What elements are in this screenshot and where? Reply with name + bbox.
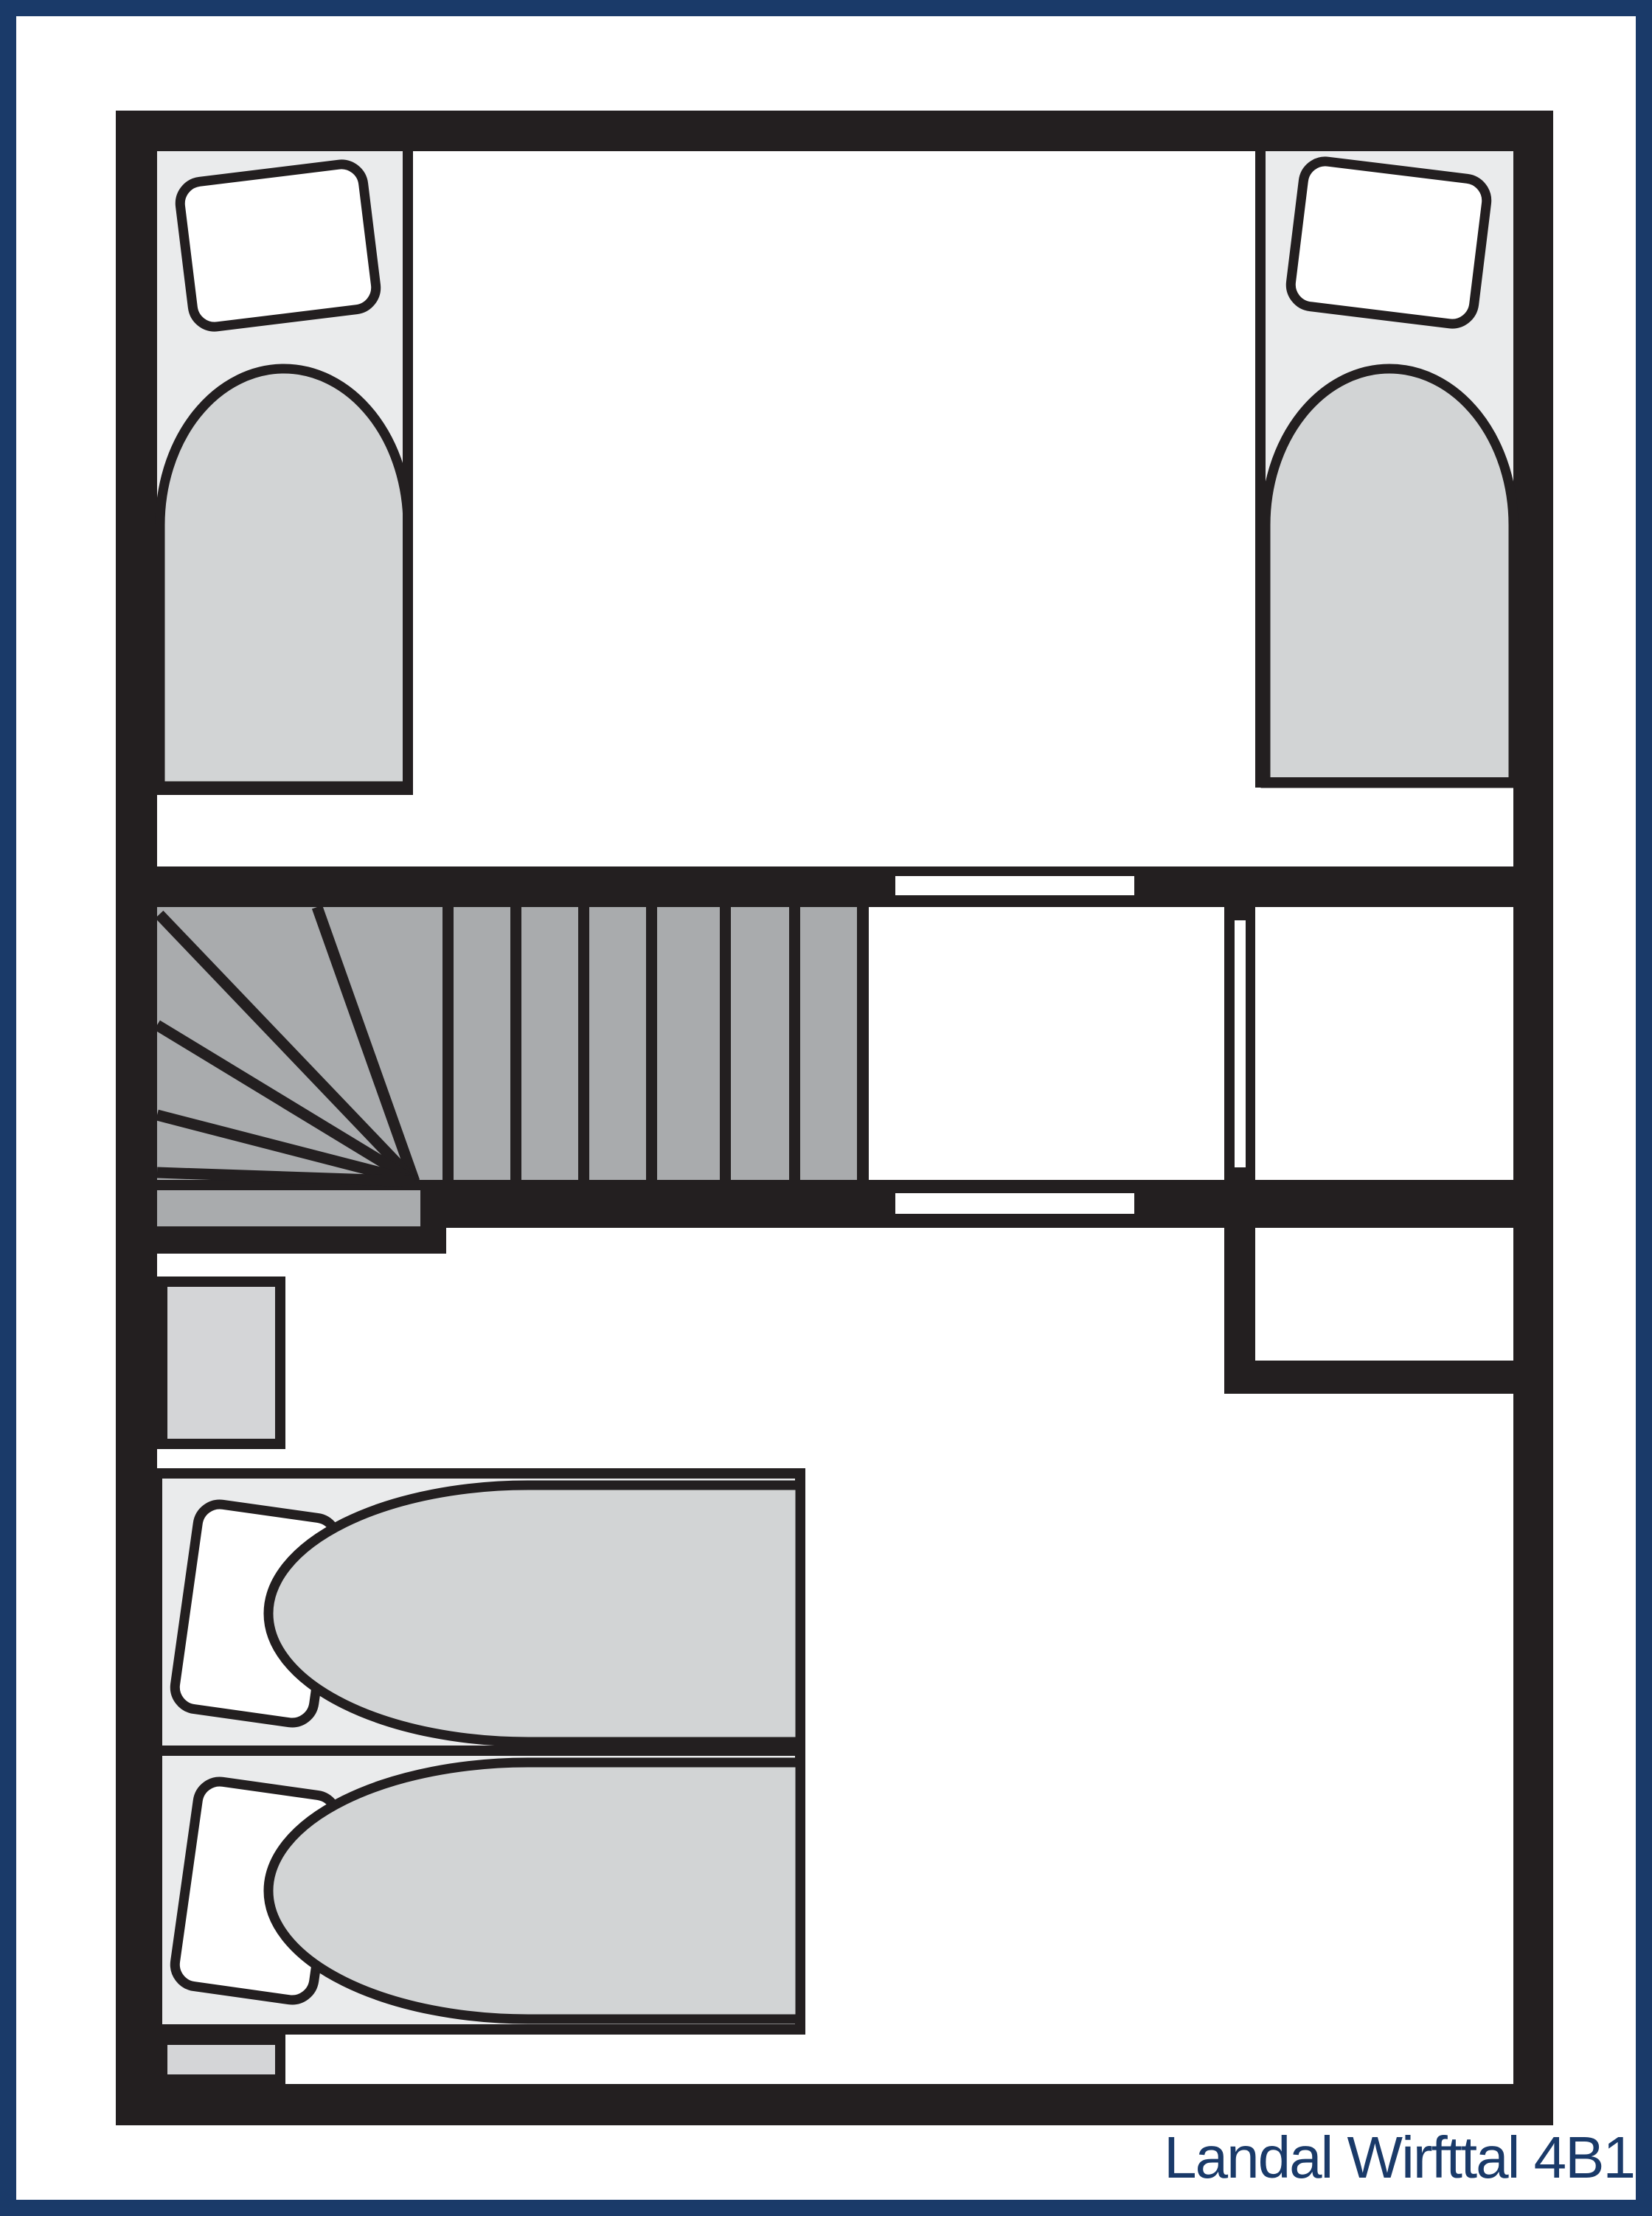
- bed-lower-1: [157, 1473, 800, 1751]
- mattress: [268, 1762, 800, 2019]
- single-bed-top-left: [157, 151, 413, 795]
- mattress: [268, 1485, 800, 1742]
- wall-landing-jog: [420, 1190, 446, 1254]
- stair-tread-line: [720, 907, 731, 1180]
- wall-bedroom-separator: [116, 866, 1553, 907]
- door-opening-top-bedroom: [895, 876, 1134, 895]
- wall-top: [116, 111, 1553, 151]
- floorplan-canvas: [0, 0, 1652, 2216]
- door-openings: [895, 876, 1246, 1214]
- bed-side-line: [403, 151, 413, 791]
- floorplan-page: Landal Wirfttal 4B1: [0, 0, 1652, 2216]
- plan-title-label: Landal Wirfttal 4B1: [1164, 2128, 1634, 2187]
- wall-bottom: [116, 2084, 1553, 2125]
- mattress: [160, 369, 408, 786]
- nightstand-lower: [162, 2040, 280, 2080]
- pillow: [178, 162, 378, 330]
- stair-tread-line: [442, 907, 454, 1180]
- stair-tread-line: [646, 907, 657, 1180]
- stair-right-stringer: [857, 907, 869, 1192]
- double-bed-lower-left: [157, 1473, 800, 2029]
- bed-foot-line: [157, 785, 413, 795]
- winder-staircase: [157, 907, 869, 1226]
- door-opening-hall: [895, 1193, 1134, 1214]
- stair-tread-line: [578, 907, 589, 1180]
- stair-tread-line: [789, 907, 800, 1180]
- single-bed-top-right: [1255, 151, 1513, 788]
- stair-landing-step: [157, 1190, 420, 1226]
- nightstand-upper: [162, 1282, 280, 1444]
- mattress: [1266, 369, 1513, 783]
- wall-right: [1513, 111, 1553, 2125]
- bed-foot-line: [1255, 777, 1513, 788]
- stair-tread-line: [510, 907, 521, 1180]
- bed-side-line: [1255, 151, 1266, 788]
- wall-closet-bottom: [1224, 1361, 1553, 1394]
- wall-left: [116, 111, 157, 2125]
- bed-lower-2: [157, 1751, 800, 2029]
- pillow: [1288, 159, 1489, 327]
- door-opening-right-room: [1235, 920, 1246, 1167]
- wall-landing: [116, 1226, 446, 1254]
